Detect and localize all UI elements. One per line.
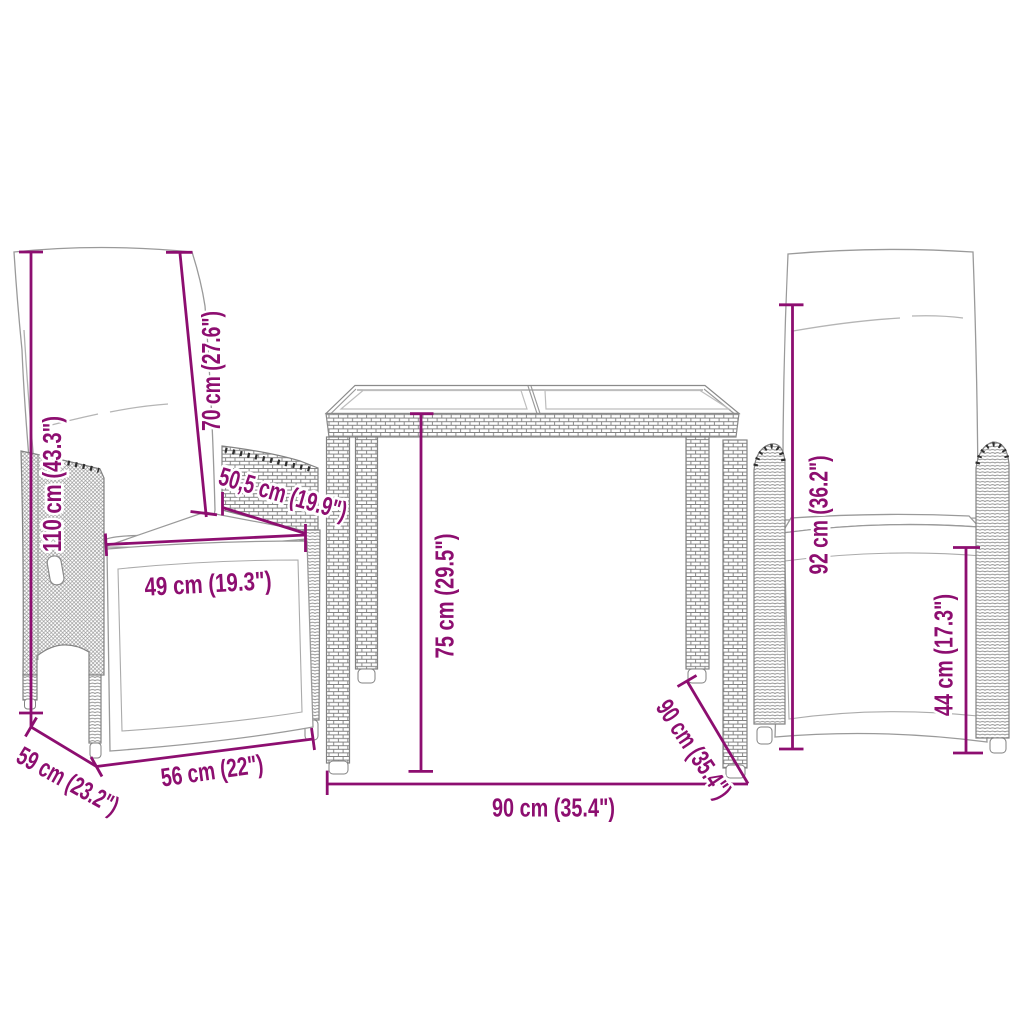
- svg-text:70 cm (27.6"): 70 cm (27.6"): [196, 311, 226, 431]
- svg-text:90 cm (35.4"): 90 cm (35.4"): [492, 793, 615, 823]
- svg-text:75 cm (29.5"): 75 cm (29.5"): [430, 534, 460, 659]
- svg-text:110 cm (43.3"): 110 cm (43.3"): [37, 416, 67, 552]
- svg-text:92 cm (36.2"): 92 cm (36.2"): [804, 456, 834, 575]
- svg-text:44 cm (17.3"): 44 cm (17.3"): [929, 594, 959, 716]
